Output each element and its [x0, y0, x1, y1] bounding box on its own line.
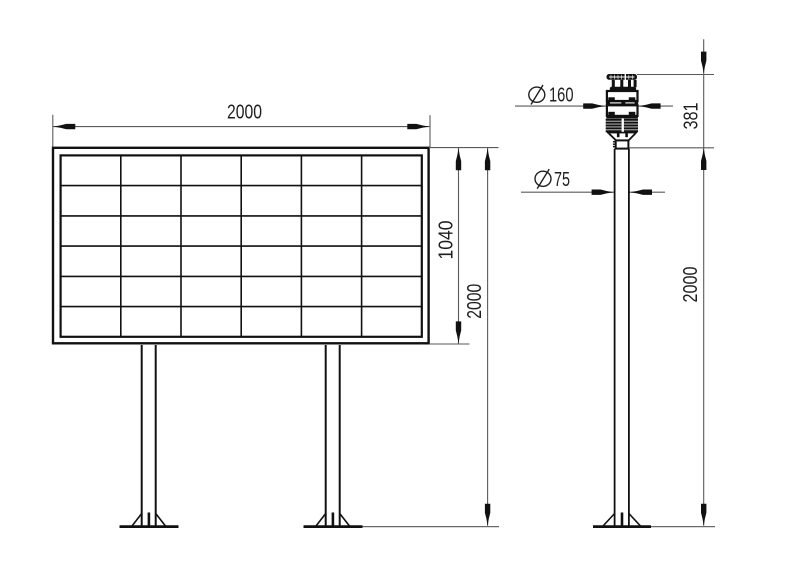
svg-text:160: 160: [549, 85, 574, 107]
svg-text:75: 75: [554, 169, 570, 191]
svg-text:2000: 2000: [227, 102, 262, 124]
svg-text:2000: 2000: [464, 284, 486, 319]
svg-text:1040: 1040: [436, 221, 458, 260]
svg-text:381: 381: [681, 103, 703, 130]
svg-text:2000: 2000: [680, 267, 702, 303]
